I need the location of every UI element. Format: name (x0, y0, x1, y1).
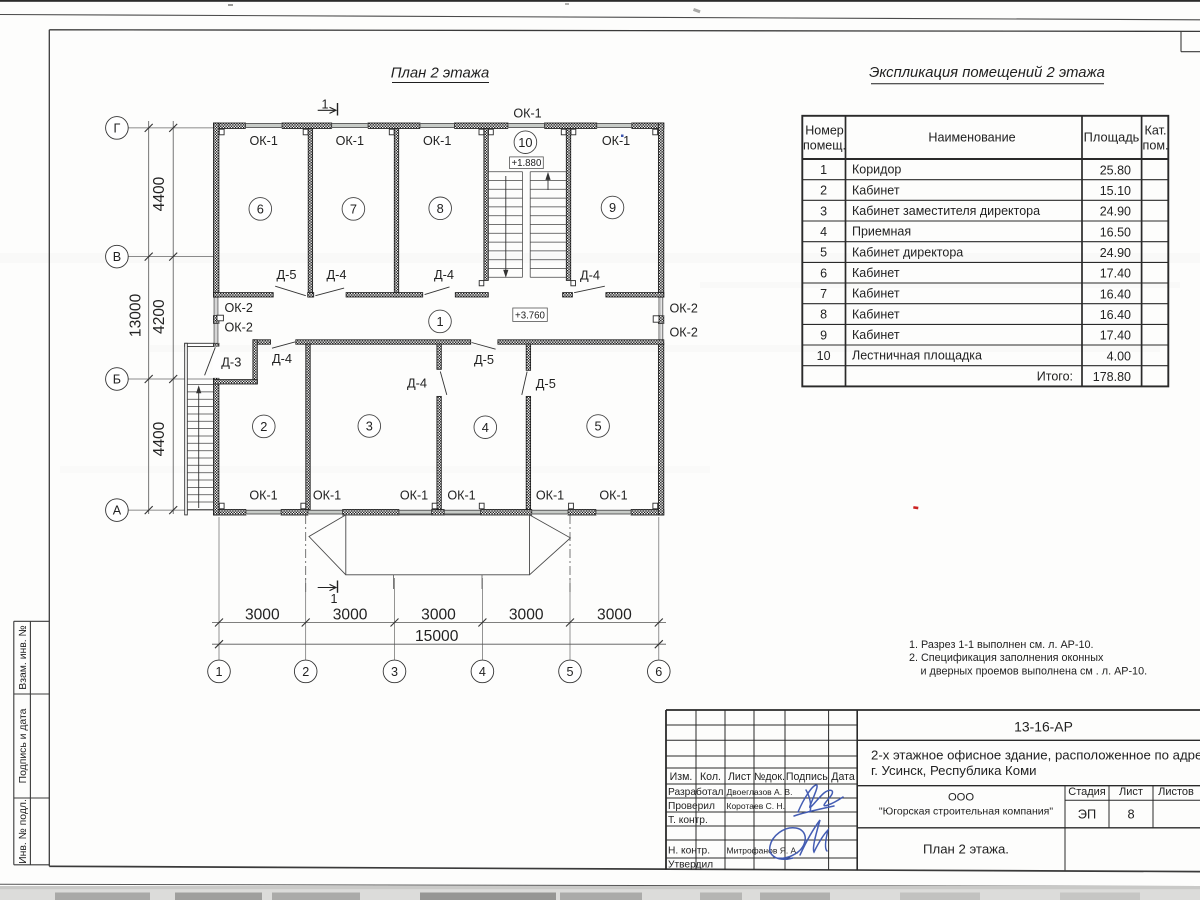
svg-text:Утвердил: Утвердил (668, 859, 713, 870)
svg-text:2: 2 (260, 419, 267, 434)
svg-text:Лист: Лист (728, 771, 751, 783)
svg-text:ОК-1: ОК-1 (336, 134, 364, 148)
svg-text:Кабинет: Кабинет (852, 183, 900, 197)
svg-text:ЭП: ЭП (1078, 807, 1096, 822)
svg-text:3000: 3000 (509, 607, 544, 624)
svg-text:Итого:: Итого: (1037, 370, 1073, 384)
svg-text:3000: 3000 (421, 607, 456, 624)
svg-text:Листов: Листов (1158, 786, 1194, 798)
svg-text:3: 3 (391, 665, 398, 679)
svg-text:Взам. инв. №: Взам. инв. № (18, 625, 29, 689)
svg-text:Площадь: Площадь (1084, 130, 1140, 145)
svg-text:6: 6 (257, 202, 264, 217)
svg-text:5: 5 (820, 246, 827, 260)
svg-text:1: 1 (215, 665, 222, 679)
svg-text:1. Разрез 1-1 выполнен см. л.: 1. Разрез 1-1 выполнен см. л. АР-10. (909, 639, 1093, 651)
svg-text:Д-4: Д-4 (434, 267, 454, 282)
svg-text:3000: 3000 (333, 607, 368, 624)
svg-text:3000: 3000 (245, 607, 280, 624)
svg-text:1: 1 (436, 314, 443, 329)
svg-text:Т. контр.: Т. контр. (668, 815, 708, 826)
svg-text:4400: 4400 (151, 176, 168, 211)
svg-text:8: 8 (1127, 807, 1134, 822)
svg-text:Инв. № подл.: Инв. № подл. (18, 799, 29, 864)
svg-text:ОК-1: ОК-1 (447, 489, 475, 503)
svg-text:1: 1 (820, 163, 827, 177)
svg-text:пом.: пом. (1143, 139, 1169, 153)
svg-text:Экспликация помещений 2 этажа: Экспликация помещений 2 этажа (869, 65, 1105, 81)
svg-text:2: 2 (302, 665, 309, 679)
svg-text:План 2 этажа: План 2 этажа (391, 66, 490, 82)
svg-text:15000: 15000 (415, 628, 459, 645)
svg-text:Лестничная площадка: Лестничная площадка (852, 349, 982, 363)
svg-text:г. Усинск, Республика Коми: г. Усинск, Республика Коми (871, 763, 1037, 778)
svg-text:Митрофанов Я. А.: Митрофанов Я. А. (727, 846, 799, 856)
svg-text:Д-3: Д-3 (221, 355, 241, 370)
svg-text:5: 5 (595, 419, 602, 434)
svg-text:Стадия: Стадия (1068, 786, 1106, 798)
svg-text:Наименование: Наименование (928, 131, 1015, 145)
svg-text:24.90: 24.90 (1100, 246, 1131, 260)
svg-text:16.40: 16.40 (1100, 287, 1131, 301)
svg-text:Кат.: Кат. (1145, 124, 1167, 138)
svg-text:В: В (113, 250, 121, 264)
svg-text:Двоеглазов А. В.: Двоеглазов А. В. (727, 787, 793, 797)
svg-text:ОК-1: ОК-1 (249, 489, 277, 503)
svg-text:2. Спецификация заполнения око: 2. Спецификация заполнения оконных (909, 652, 1104, 664)
svg-text:7: 7 (350, 202, 357, 217)
svg-text:Разработал: Разработал (668, 786, 724, 798)
svg-text:Коридор: Коридор (852, 163, 901, 177)
svg-text:ОК-1: ОК-1 (602, 134, 630, 148)
svg-text:9: 9 (609, 200, 616, 215)
svg-text:25.80: 25.80 (1100, 163, 1131, 177)
svg-text:ОК-1: ОК-1 (536, 489, 564, 503)
svg-text:Номер: Номер (805, 124, 844, 138)
svg-text:3000: 3000 (597, 607, 632, 624)
svg-text:3: 3 (820, 204, 827, 218)
svg-text:16.40: 16.40 (1100, 308, 1131, 322)
svg-text:8: 8 (437, 201, 444, 216)
svg-text:ОК-1: ОК-1 (250, 134, 278, 148)
svg-text:1: 1 (331, 592, 338, 606)
svg-text:4: 4 (820, 225, 827, 239)
svg-text:Кабинет директора: Кабинет директора (852, 245, 963, 259)
svg-text:4200: 4200 (151, 299, 168, 334)
svg-text:Изм.: Изм. (670, 771, 693, 783)
svg-text:8: 8 (820, 308, 827, 322)
svg-text:Кабинет: Кабинет (852, 328, 900, 342)
svg-text:помещ.: помещ. (803, 139, 846, 153)
svg-text:Лист: Лист (1119, 786, 1143, 798)
svg-text:Д-4: Д-4 (407, 375, 427, 390)
svg-text:ООО: ООО (948, 792, 974, 804)
svg-text:1: 1 (322, 98, 329, 112)
svg-text:Коротаев С. Н.: Коротаев С. Н. (727, 801, 785, 811)
svg-text:Подпись и дата: Подпись и дата (18, 708, 29, 783)
svg-text:24.90: 24.90 (1100, 205, 1131, 219)
svg-text:Проверил: Проверил (668, 801, 715, 812)
svg-text:и дверных проемов выполнена см: и дверных проемов выполнена см . л. АР-1… (921, 666, 1148, 678)
svg-text:9: 9 (820, 328, 827, 342)
svg-text:13-16-АР: 13-16-АР (1014, 719, 1073, 735)
svg-text:Б: Б (113, 373, 121, 387)
svg-text:+3.760: +3.760 (515, 310, 546, 321)
svg-text:Кабинет: Кабинет (852, 307, 900, 321)
svg-text:Приемная: Приемная (852, 225, 911, 239)
svg-text:2: 2 (820, 184, 827, 198)
svg-text:Кабинет заместителя директора: Кабинет заместителя директора (852, 204, 1040, 218)
svg-text:ОК-2: ОК-2 (225, 321, 253, 335)
svg-text:Кабинет: Кабинет (852, 266, 900, 280)
svg-text:Дата: Дата (831, 771, 855, 783)
svg-text:13000: 13000 (128, 293, 145, 337)
svg-text:Д-5: Д-5 (474, 352, 494, 367)
svg-text:Д-5: Д-5 (276, 267, 296, 282)
svg-text:+1.880: +1.880 (511, 158, 542, 169)
svg-text:ОК-1: ОК-1 (423, 134, 451, 148)
svg-text:Д-5: Д-5 (536, 376, 556, 391)
svg-text:"Югорская строительная компани: "Югорская строительная компания" (879, 806, 1053, 818)
svg-text:Г: Г (113, 121, 120, 135)
svg-text:4: 4 (479, 665, 486, 679)
svg-text:ОК-1: ОК-1 (513, 107, 541, 121)
svg-text:Д-4: Д-4 (326, 267, 346, 282)
svg-text:17.40: 17.40 (1100, 267, 1131, 281)
svg-text:Кабинет: Кабинет (852, 287, 900, 301)
svg-text:17.40: 17.40 (1100, 329, 1131, 343)
svg-text:10: 10 (817, 349, 831, 363)
svg-text:ОК-1: ОК-1 (599, 489, 627, 503)
svg-text:Н. контр.: Н. контр. (668, 846, 710, 857)
svg-text:Подпись: Подпись (786, 771, 828, 783)
svg-text:№док.: №док. (754, 771, 785, 783)
svg-text:6: 6 (820, 266, 827, 280)
svg-text:План 2 этажа.: План 2 этажа. (923, 842, 1009, 857)
svg-text:А: А (113, 504, 122, 518)
svg-text:ОК-1: ОК-1 (313, 489, 341, 503)
svg-text:ОК-2: ОК-2 (670, 302, 698, 316)
svg-text:5: 5 (566, 665, 573, 679)
svg-text:4: 4 (482, 420, 489, 435)
svg-text:ОК-2: ОК-2 (225, 301, 253, 315)
svg-text:3: 3 (366, 419, 373, 434)
svg-text:4.00: 4.00 (1107, 349, 1131, 363)
svg-text:178.80: 178.80 (1093, 370, 1131, 384)
svg-text:15.10: 15.10 (1100, 184, 1131, 198)
svg-text:2-х этажное офисное здание, ра: 2-х этажное офисное здание, расположенно… (871, 748, 1200, 763)
svg-text:4400: 4400 (151, 421, 168, 456)
svg-text:Кол.: Кол. (700, 771, 721, 783)
svg-text:ОК-2: ОК-2 (670, 326, 698, 340)
svg-text:16.50: 16.50 (1100, 225, 1131, 239)
svg-text:6: 6 (655, 665, 662, 679)
svg-text:7: 7 (820, 287, 827, 301)
svg-text:10: 10 (518, 135, 532, 150)
svg-text:ОК-1: ОК-1 (400, 489, 428, 503)
svg-text:Д-4: Д-4 (580, 268, 600, 283)
svg-text:Д-4: Д-4 (272, 351, 292, 366)
